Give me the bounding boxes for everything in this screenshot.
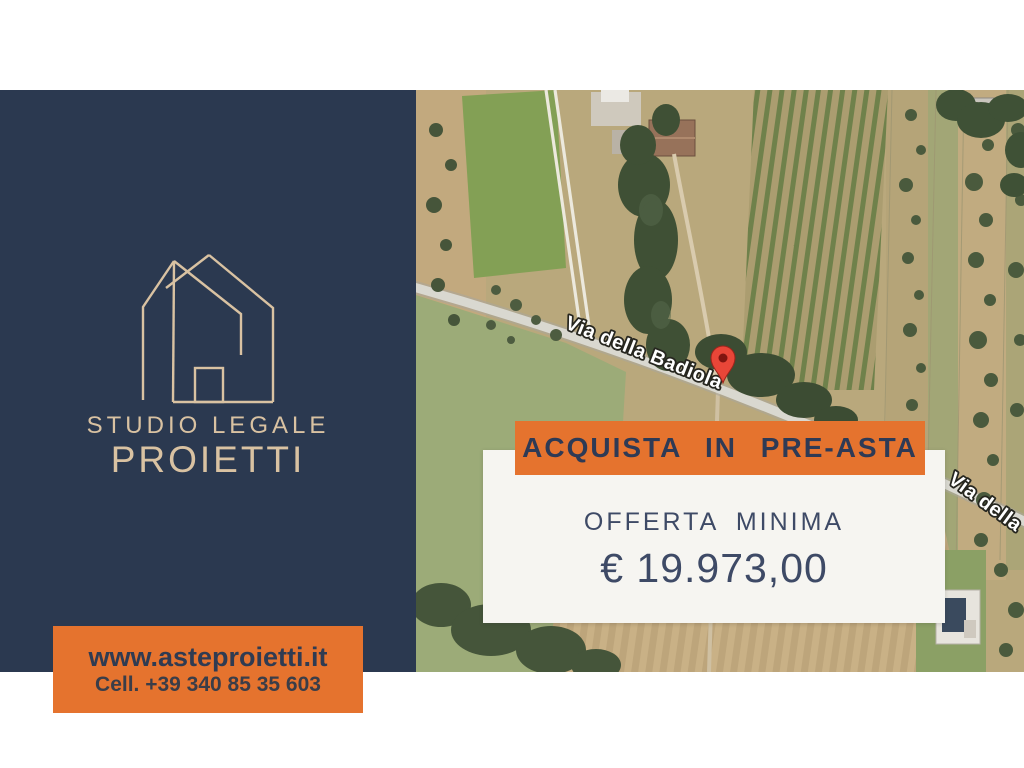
offer-card: OFFERTA MINIMA € 19.973,00 [483,450,945,623]
contact-box: www.asteproietti.it Cell. +39 340 85 35 … [53,626,363,713]
phone-number: Cell. +39 340 85 35 603 [95,673,321,696]
website-link[interactable]: www.asteproietti.it [88,643,327,671]
house-logo-icon [133,246,283,408]
brand-studio-legale: STUDIO LEGALE [0,412,416,440]
brand-proietti: PROIETTI [0,439,416,481]
pre-asta-banner: ACQUISTA IN PRE-ASTA [515,421,925,475]
flyer: STUDIO LEGALE PROIETTI www.asteproietti.… [0,0,1024,768]
offer-heading: OFFERTA MINIMA [483,508,945,537]
offer-amount: € 19.973,00 [483,545,945,592]
brand-panel: STUDIO LEGALE PROIETTI www.asteproietti.… [0,90,416,672]
